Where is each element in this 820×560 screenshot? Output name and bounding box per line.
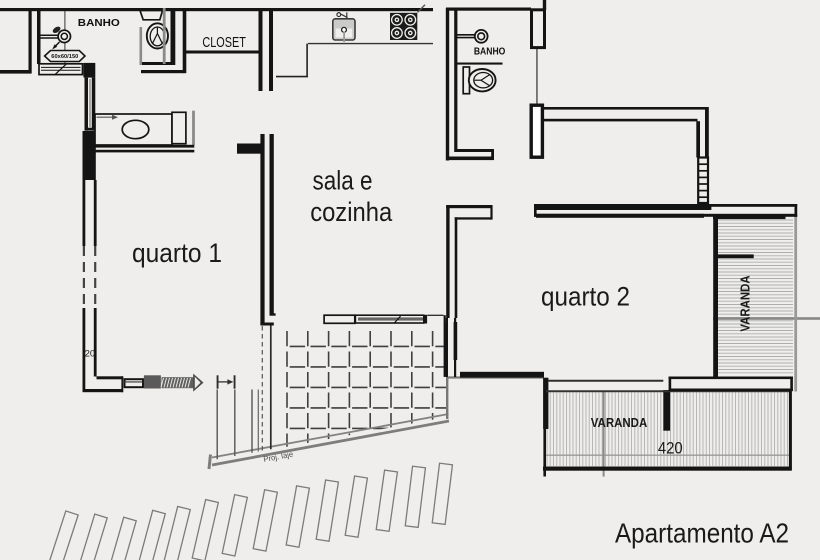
svg-text:sala e: sala e	[313, 166, 373, 196]
svg-text:Apartamento A2: Apartamento A2	[615, 518, 789, 549]
svg-text:60x60/150: 60x60/150	[51, 54, 78, 60]
svg-text:20: 20	[85, 348, 96, 358]
svg-text:BANHO: BANHO	[474, 47, 506, 58]
svg-text:BANHO: BANHO	[78, 17, 120, 29]
svg-text:quarto 2: quarto 2	[541, 282, 630, 312]
svg-text:VARANDA: VARANDA	[739, 275, 753, 331]
svg-text:quarto 1: quarto 1	[132, 238, 222, 268]
svg-text:CLOSET: CLOSET	[202, 35, 246, 51]
svg-text:VARANDA: VARANDA	[591, 415, 648, 430]
svg-text:cozinha: cozinha	[310, 197, 393, 227]
svg-text:420: 420	[658, 440, 683, 458]
